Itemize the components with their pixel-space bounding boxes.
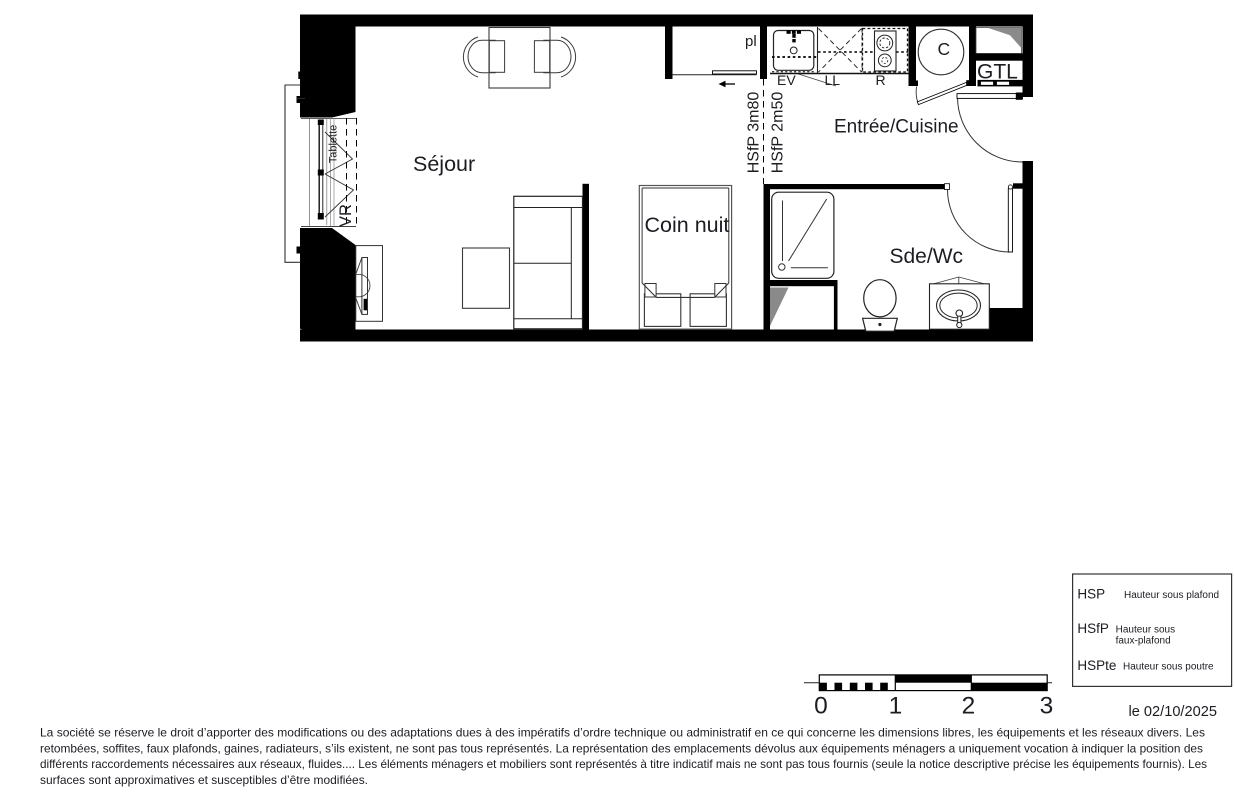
- svg-text:LL: LL: [825, 72, 841, 88]
- svg-text:retombées, soffites, faux plaf: retombées, soffites, faux plafonds, gain…: [40, 741, 1203, 755]
- svg-text:3: 3: [1040, 693, 1054, 720]
- svg-text:VR: VR: [337, 204, 355, 227]
- svg-text:le 02/10/2025: le 02/10/2025: [1129, 704, 1217, 720]
- svg-text:Hauteur sous poutre: Hauteur sous poutre: [1123, 662, 1214, 673]
- svg-text:1: 1: [889, 693, 903, 720]
- svg-text:Hauteur sous: Hauteur sous: [1116, 625, 1175, 636]
- svg-text:HSfP: HSfP: [1077, 621, 1109, 636]
- svg-text:pl: pl: [745, 33, 757, 50]
- svg-text:Tablette: Tablette: [328, 125, 340, 164]
- svg-text:HSfP 2m50: HSfP 2m50: [770, 92, 787, 174]
- svg-text:0: 0: [814, 693, 828, 720]
- svg-text:C: C: [938, 39, 951, 59]
- svg-text:différents raccordements néces: différents raccordements nécessaires aux…: [40, 757, 1207, 771]
- svg-text:HSPte: HSPte: [1077, 658, 1116, 673]
- svg-text:Séjour: Séjour: [413, 152, 475, 176]
- svg-text:GTL: GTL: [977, 61, 1018, 84]
- svg-text:La société se réserve le droit: La société se réserve le droit d’apporte…: [40, 726, 1205, 740]
- svg-text:Hauteur sous plafond: Hauteur sous plafond: [1124, 590, 1219, 601]
- svg-text:faux-plafond: faux-plafond: [1116, 635, 1171, 646]
- svg-text:Entrée/Cuisine: Entrée/Cuisine: [834, 117, 959, 138]
- svg-text:Coin nuit: Coin nuit: [645, 213, 730, 237]
- svg-text:Sde/Wc: Sde/Wc: [890, 245, 964, 268]
- svg-text:HSfP 3m80: HSfP 3m80: [746, 92, 763, 174]
- svg-text:R: R: [876, 72, 886, 88]
- svg-text:EV: EV: [777, 72, 796, 88]
- svg-text:surfaces sont approximatives e: surfaces sont approximatives et suscepti…: [40, 773, 368, 787]
- svg-text:2: 2: [962, 693, 976, 720]
- svg-text:HSP: HSP: [1077, 587, 1105, 602]
